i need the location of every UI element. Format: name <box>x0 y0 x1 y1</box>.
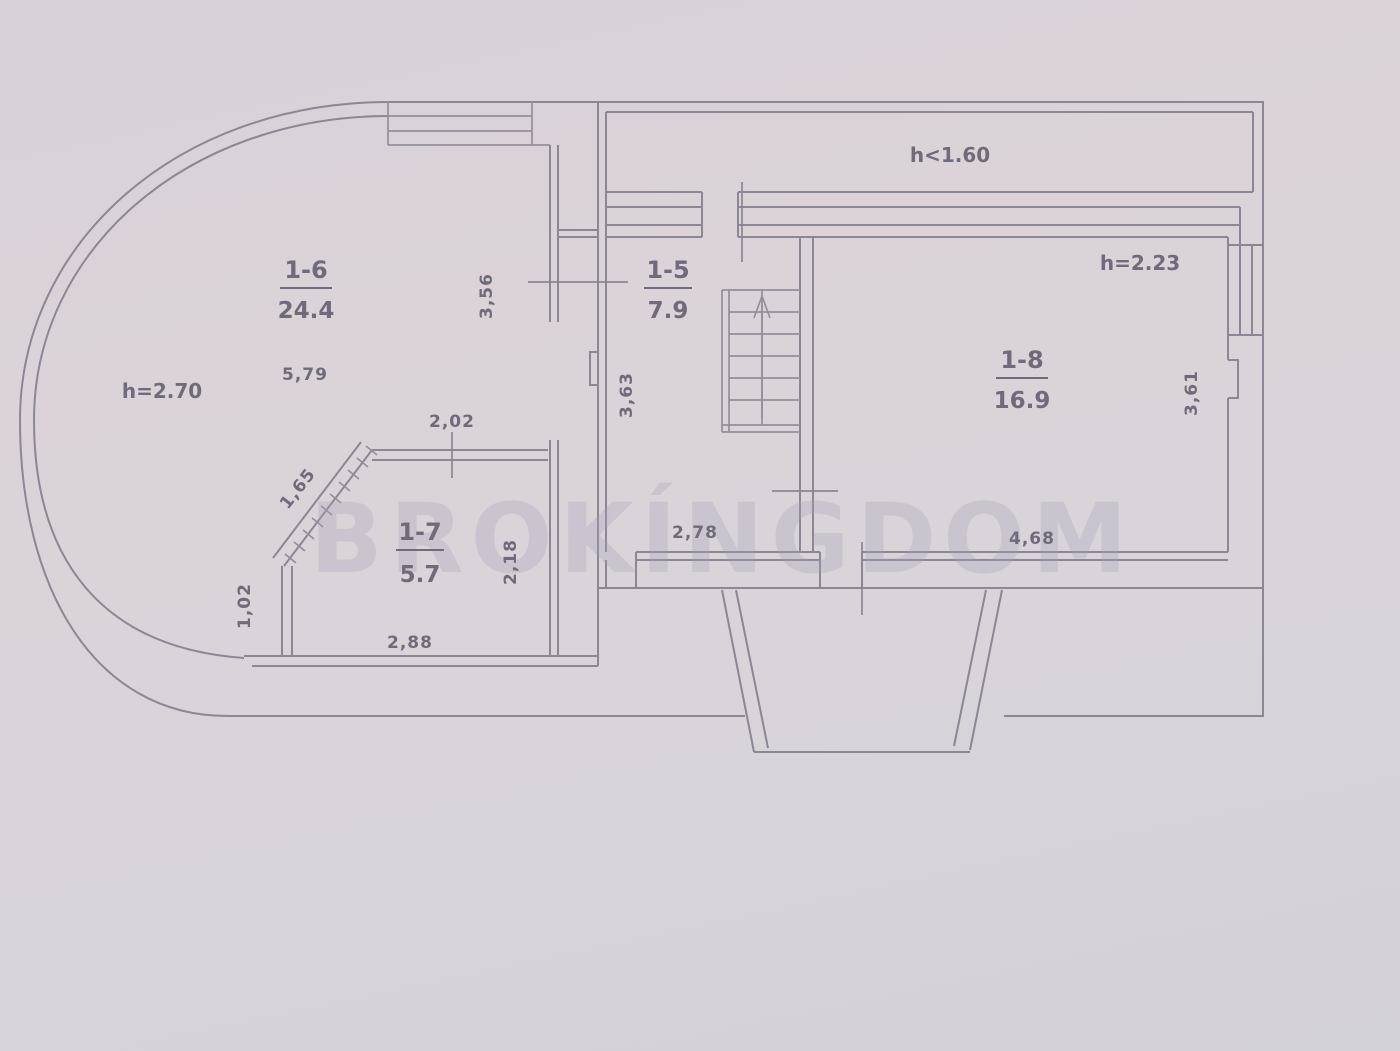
room16-area: 24.4 <box>278 298 335 324</box>
room16-height: h=2.70 <box>122 379 202 403</box>
room18-area: 16.9 <box>994 388 1051 414</box>
room16-depth-dim: 3,56 <box>477 273 497 319</box>
room18-bottom-dim: 4,68 <box>1009 529 1055 549</box>
outer-shell-walls <box>20 102 1263 716</box>
floor-plan-photo: BROKÍNGDOM 1-6 24.4 5,79 h=2.70 3,56 h<1… <box>0 0 1400 1051</box>
attic-height: h<1.60 <box>910 143 990 167</box>
floor-plan-svg: BROKÍNGDOM 1-6 24.4 5,79 h=2.70 3,56 h<1… <box>0 0 1400 1051</box>
room17-area: 5.7 <box>400 562 441 588</box>
room17-top-dim: 2,02 <box>429 412 475 432</box>
room15-depth-dim: 3,63 <box>617 372 637 418</box>
room16-width-dim: 5,79 <box>282 365 328 385</box>
room18-number: 1-8 <box>1000 346 1043 374</box>
room16-number: 1-6 <box>284 256 327 284</box>
room15-area: 7.9 <box>648 298 689 324</box>
room18-depth-dim: 3,61 <box>1182 370 1202 416</box>
staircase <box>722 290 800 432</box>
window-top-room16 <box>388 102 550 145</box>
room17-right-dim: 2,18 <box>501 539 521 585</box>
room17-left-dim: 1,02 <box>235 583 255 629</box>
room17-number: 1-7 <box>398 518 441 546</box>
room18-height: h=2.23 <box>1100 251 1180 275</box>
room17-bottom-dim: 2,88 <box>387 633 433 653</box>
room15-number: 1-5 <box>646 256 689 284</box>
room15-bottom-dim: 2,78 <box>672 523 718 543</box>
